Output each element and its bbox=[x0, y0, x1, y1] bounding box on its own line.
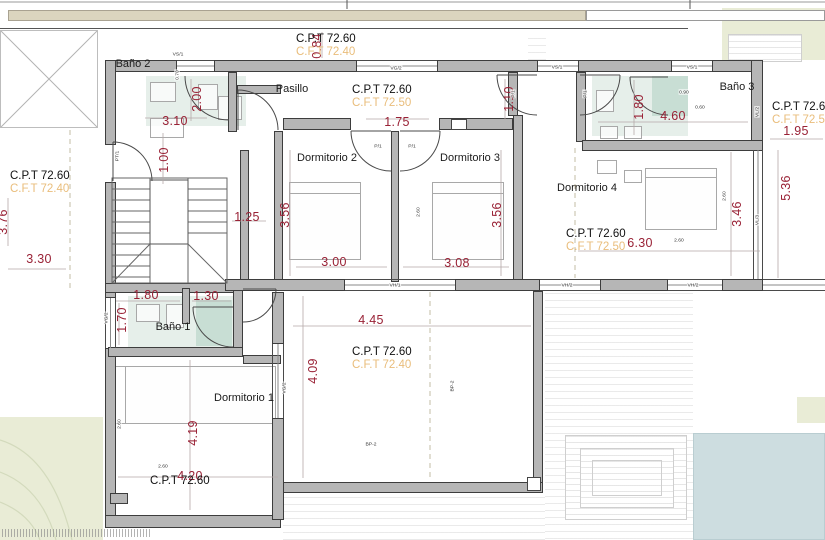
room-name-label: Dormitorio 2 bbox=[297, 152, 357, 164]
dimension-label: 3.08 bbox=[444, 256, 470, 270]
dimension-label: 5.36 bbox=[779, 175, 793, 201]
floor-level-annotation: C.P.T 72.60C.F.T 72.50 bbox=[352, 84, 412, 110]
element-code-tag: VH/1 bbox=[389, 282, 401, 288]
floor-level-annotation: C.P.T 72.60C.F.T 72.40 bbox=[352, 346, 412, 372]
cft-level-value: C.F.T 72.50 bbox=[352, 97, 412, 110]
dimension-label: 3.46 bbox=[730, 201, 744, 227]
element-code-tag: VG/2 bbox=[390, 65, 402, 71]
dimension-label: 1.80 bbox=[632, 94, 646, 120]
element-code-tag: 0.90 bbox=[679, 89, 690, 95]
dimension-label: 4.60 bbox=[660, 109, 686, 123]
element-code-tag: 0.60 bbox=[695, 104, 706, 110]
element-code-tag: 2.60 bbox=[116, 419, 122, 430]
cft-level-value: C.F.T 72.50 bbox=[772, 114, 825, 127]
floor-level-annotation: C.P.T 72.60C.F.T 72.50 bbox=[772, 101, 825, 127]
floor-level-annotation: C.P.T 72.60C.F.T 72.50 bbox=[566, 228, 626, 254]
element-code-tag: VH/2 bbox=[561, 282, 573, 288]
element-code-tag: BP-2 bbox=[449, 380, 455, 392]
room-name-label: Baño 3 bbox=[720, 81, 755, 93]
cpt-level-value: C.P.T 72.60 bbox=[772, 101, 825, 114]
dimension-label: 2.00 bbox=[190, 86, 204, 112]
cpt-level-value: C.P.T 72.60 bbox=[566, 228, 626, 241]
dimension-label: 4.09 bbox=[306, 358, 320, 384]
cpt-level-value: C.P.T 72.60 bbox=[352, 84, 412, 97]
cpt-level-value: C.P.T 72.60 bbox=[10, 170, 70, 183]
element-code-tag: P/1 bbox=[510, 90, 516, 99]
element-code-tag: VG/2 bbox=[103, 312, 109, 324]
element-code-tag: PT/1 bbox=[114, 150, 120, 162]
annotation-layer: Baño 2PasilloBaño 3Dormitorio 2Dormitori… bbox=[0, 0, 825, 540]
dimension-label: 1.70 bbox=[115, 307, 129, 333]
cpt-level-value: C.P.T 72.60 bbox=[352, 346, 412, 359]
element-code-tag: VS/1 bbox=[172, 51, 184, 57]
room-name-label: Dormitorio 1 bbox=[214, 392, 274, 404]
dimension-label: 3.56 bbox=[278, 202, 292, 228]
room-name-label: Dormitorio 4 bbox=[557, 182, 617, 194]
floor-level-annotation: C.P.T 72.60 bbox=[150, 475, 210, 488]
room-name-label: Baño 2 bbox=[116, 58, 151, 70]
element-code-tag: VL/3 bbox=[754, 214, 760, 225]
dimension-label: 3.56 bbox=[490, 202, 504, 228]
cft-level-value: C.F.T 72.40 bbox=[352, 359, 412, 372]
element-code-tag: 2.60 bbox=[415, 207, 421, 218]
dimension-label: 3.76 bbox=[0, 209, 10, 235]
floor-plan-canvas: Baño 2PasilloBaño 3Dormitorio 2Dormitori… bbox=[0, 0, 825, 540]
room-name-label: Dormitorio 3 bbox=[440, 152, 500, 164]
dimension-label: 1.30 bbox=[193, 289, 219, 303]
dimension-label: 3.00 bbox=[321, 255, 347, 269]
element-code-tag: P/1 bbox=[582, 90, 588, 99]
cft-level-value: C.F.T 72.40 bbox=[10, 183, 70, 196]
dimension-label: 6.30 bbox=[627, 236, 653, 250]
dimension-label: 1.75 bbox=[384, 115, 410, 129]
element-code-tag: 0.70 bbox=[174, 70, 180, 81]
cft-level-value: C.F.T 72.50 bbox=[566, 241, 626, 254]
element-code-tag: VL/2 bbox=[754, 106, 760, 117]
room-name-label: Pasillo bbox=[276, 83, 308, 95]
cft-level-value: C.F.T 72.40 bbox=[296, 46, 356, 59]
element-code-tag: VS/1 bbox=[686, 64, 698, 70]
element-code-tag: 2.60 bbox=[158, 463, 169, 469]
element-code-tag: 2.60 bbox=[674, 237, 685, 243]
dimension-label: 1.80 bbox=[133, 288, 159, 302]
element-code-tag: VH/2 bbox=[687, 282, 699, 288]
floor-level-annotation: C.P.T 72.60C.F.T 72.40 bbox=[296, 33, 356, 59]
dimension-label: 1.00 bbox=[157, 147, 171, 173]
dimension-label: 4.45 bbox=[358, 313, 384, 327]
dimension-label: 1.25 bbox=[234, 210, 260, 224]
room-name-label: Baño 1 bbox=[156, 321, 191, 333]
element-code-tag: VG/2 bbox=[281, 382, 287, 394]
cpt-level-value: C.P.T 72.60 bbox=[150, 475, 210, 488]
element-code-tag: P/1 bbox=[408, 143, 417, 149]
element-code-tag: 2.60 bbox=[721, 191, 727, 202]
element-code-tag: P/1 bbox=[374, 143, 383, 149]
element-code-tag: VS/1 bbox=[551, 64, 563, 70]
element-code-tag: BP-2 bbox=[365, 441, 377, 447]
title-note-illegible bbox=[2, 529, 150, 537]
dimension-label: 3.30 bbox=[26, 252, 52, 266]
cpt-level-value: C.P.T 72.60 bbox=[296, 33, 356, 46]
floor-level-annotation: C.P.T 72.60C.F.T 72.40 bbox=[10, 170, 70, 196]
dimension-label: 3.10 bbox=[162, 114, 188, 128]
dimension-label: 4.19 bbox=[186, 420, 200, 446]
